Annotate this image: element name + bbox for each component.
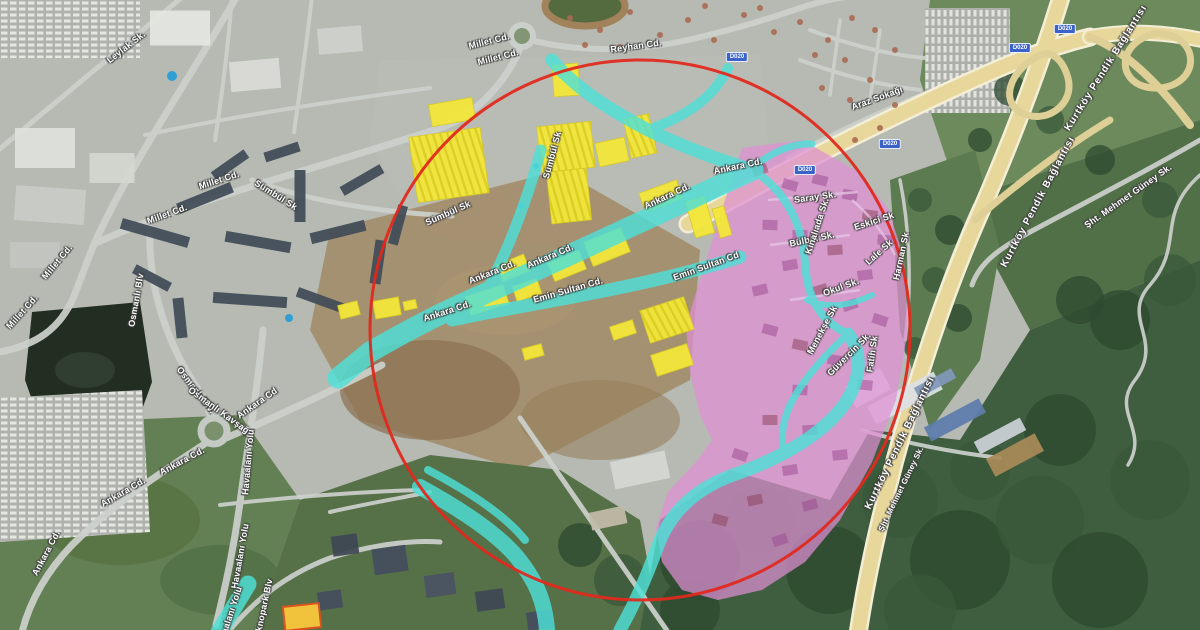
satellite-map [0, 0, 1200, 630]
map-canvas[interactable]: Leylak Sk.Millet Cd.Millet Cd.Reyhan Cd.… [0, 0, 1200, 630]
